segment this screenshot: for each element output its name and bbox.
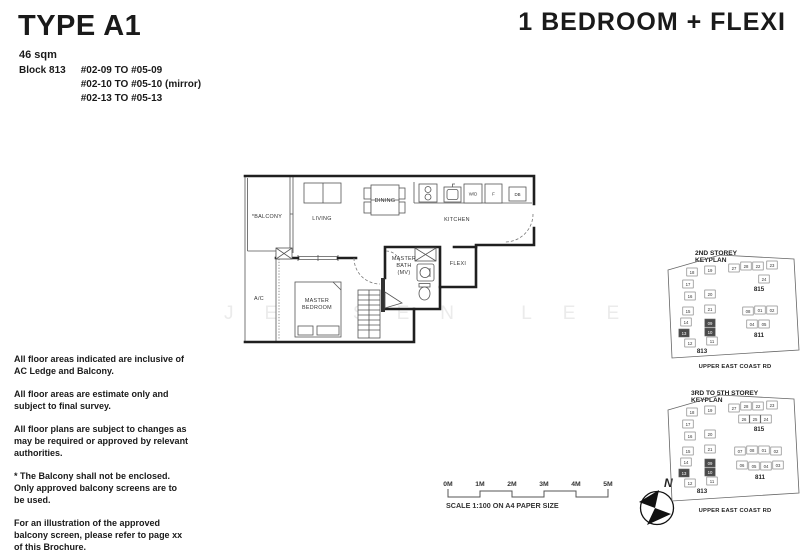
label-master-bedroom: MASTER	[305, 298, 329, 304]
keyplan-unit-number: 27	[732, 406, 737, 411]
keyplan-units: 1819171620152114091310121181327282223262…	[679, 401, 783, 495]
road-label: UPPER EAST COAST RD	[699, 508, 772, 514]
keyplan-unit-number: 02	[774, 449, 779, 454]
keyplan-unit-number: 24	[762, 277, 767, 282]
keyplan-unit-number: 06	[740, 463, 745, 468]
keyplan-unit-number: 11	[710, 339, 715, 344]
note: All floor areas are estimate only and su…	[14, 388, 190, 412]
keyplan-unit-number: 14	[684, 460, 689, 465]
keyplan-block-label: 813	[697, 348, 708, 355]
keyplan-block-label: 813	[697, 488, 708, 495]
page-title: TYPE A1	[18, 10, 141, 43]
block-label: Block 813	[19, 65, 66, 107]
keyplan-block-label: 815	[754, 426, 765, 433]
keyplan-unit-number: 15	[686, 309, 691, 314]
keyplan-unit-number: 25	[753, 417, 758, 422]
unit-range: #02-09 TO #05-09	[81, 65, 201, 77]
keyplan-unit-number: 01	[762, 448, 767, 453]
label-dining: DINING	[375, 198, 396, 204]
keyplan-unit-number: 13	[682, 471, 687, 476]
keyplan-unit-number: 01	[758, 308, 763, 313]
keyplan-unit-number: 26	[742, 417, 747, 422]
keyplan-unit-number: 17	[686, 422, 691, 427]
scale-tick: 1M	[475, 481, 485, 488]
keyplan-unit-number: 14	[684, 320, 689, 325]
keyplan-unit-number: 11	[710, 479, 715, 484]
keyplan-unit-number: 28	[744, 264, 749, 269]
label-living: LIVING	[312, 216, 331, 222]
keyplan-unit-number: 04	[750, 322, 755, 327]
keyplan-unit-number: 15	[686, 449, 691, 454]
keyplan-unit-number: 08	[746, 309, 751, 314]
scale-bar: 0M 1M 2M 3M 4M 5M SCALE 1:100 ON A4 PAPE…	[438, 478, 638, 514]
label-master-bath: (MV)	[398, 270, 411, 276]
keyplan-unit-number: 23	[770, 403, 775, 408]
label-kitchen: KITCHEN	[444, 217, 470, 223]
unit-range: #02-10 TO #05-10 (mirror)	[81, 79, 201, 91]
keyplan-unit-number: 02	[770, 308, 775, 313]
unit-category-title: 1 BEDROOM + FLEXI	[518, 8, 786, 37]
keyplan-unit-number: 22	[756, 404, 761, 409]
label-master-bedroom: BEDROOM	[302, 305, 332, 311]
keyplan-unit-number: 27	[732, 266, 737, 271]
label-master-bath: MASTER	[392, 256, 416, 262]
keyplan-unit-number: 09	[708, 321, 713, 326]
keyplan-unit-number: 10	[708, 470, 713, 475]
keyplan-unit-number: 19	[708, 408, 713, 413]
keyplan-unit-number: 05	[762, 322, 767, 327]
label-fridge: F	[492, 192, 495, 197]
keyplan-unit-number: 12	[688, 341, 693, 346]
keyplan-unit-number: 22	[756, 264, 761, 269]
keyplan-title: KEYPLAN	[691, 397, 723, 404]
label-master-bath: BATH	[396, 263, 411, 269]
keyplan-unit-number: 16	[688, 294, 693, 299]
keyplan-unit-number: 09	[708, 461, 713, 466]
keyplan-2nd-storey: 2ND STOREY KEYPLAN 181917162015211409131…	[662, 248, 800, 380]
keyplan-unit-number: 19	[708, 268, 713, 273]
disclaimer-notes: All floor areas indicated are inclusive …	[14, 353, 190, 550]
keyplan-unit-number: 24	[764, 417, 769, 422]
keyplan-unit-number: 17	[686, 282, 691, 287]
keyplan-unit-number: 10	[708, 330, 713, 335]
keyplan-unit-number: 03	[776, 463, 781, 468]
keyplan-units: 1819171620152114091310121181327282223248…	[679, 261, 777, 355]
scale-tick: 4M	[571, 481, 581, 488]
keyplan-unit-number: 04	[764, 464, 769, 469]
note: All floor plans are subject to changes a…	[14, 423, 190, 459]
keyplan-unit-number: 20	[708, 432, 713, 437]
keyplan-unit-number: 18	[690, 410, 695, 415]
label-balcony: *BALCONY	[252, 214, 282, 220]
keyplan-unit-number: 13	[682, 331, 687, 336]
keyplan-title: 3RD TO 5TH STOREY	[691, 390, 759, 397]
keyplan-block-label: 811	[754, 332, 765, 339]
label-flexi: FLEXI	[450, 261, 466, 267]
keyplan-block-label: 811	[755, 474, 766, 481]
scale-tick: 5M	[603, 481, 613, 488]
keyplan-unit-number: 05	[752, 464, 757, 469]
note: All floor areas indicated are inclusive …	[14, 353, 190, 377]
scale-tick: 2M	[507, 481, 517, 488]
label-ac-ledge: A/C	[254, 296, 264, 302]
unit-number-list: #02-09 TO #05-09 #02-10 TO #05-10 (mirro…	[81, 65, 201, 107]
keyplan-unit-number: 23	[770, 263, 775, 268]
note: For an illustration of the approved balc…	[14, 517, 190, 550]
note: * The Balcony shall not be enclosed. Onl…	[14, 470, 190, 506]
unit-range: #02-13 TO #05-13	[81, 93, 201, 105]
keyplan-unit-number: 18	[690, 270, 695, 275]
keyplan-unit-number: 12	[688, 481, 693, 486]
keyplan-unit-number: 28	[744, 404, 749, 409]
block-units: Block 813 #02-09 TO #05-09 #02-10 TO #05…	[19, 65, 201, 107]
keyplan-unit-number: 21	[708, 307, 713, 312]
keyplan-block-label: 815	[754, 286, 765, 293]
label-db: DB	[514, 192, 520, 197]
keyplan-3rd-5th-storey: 3RD TO 5TH STOREY KEYPLAN 18191716201521…	[662, 388, 800, 524]
scale-tick: 0M	[443, 481, 453, 488]
floorplan-page: TYPE A1 46 sqm Block 813 #02-09 TO #05-0…	[0, 0, 800, 550]
keyplan-unit-number: 08	[750, 448, 755, 453]
keyplan-unit-number: 21	[708, 447, 713, 452]
scale-tick: 3M	[539, 481, 549, 488]
road-label: UPPER EAST COAST RD	[699, 364, 772, 370]
floor-plan: *BALCONY LIVING DINING KITCHEN W/D F DB …	[238, 160, 573, 360]
unit-area: 46 sqm	[19, 49, 57, 61]
keyplan-unit-number: 20	[708, 292, 713, 297]
label-washer-dryer: W/D	[469, 192, 478, 197]
keyplan-unit-number: 07	[738, 449, 743, 454]
scale-caption: SCALE 1:100 ON A4 PAPER SIZE	[446, 501, 559, 510]
keyplan-unit-number: 16	[688, 434, 693, 439]
